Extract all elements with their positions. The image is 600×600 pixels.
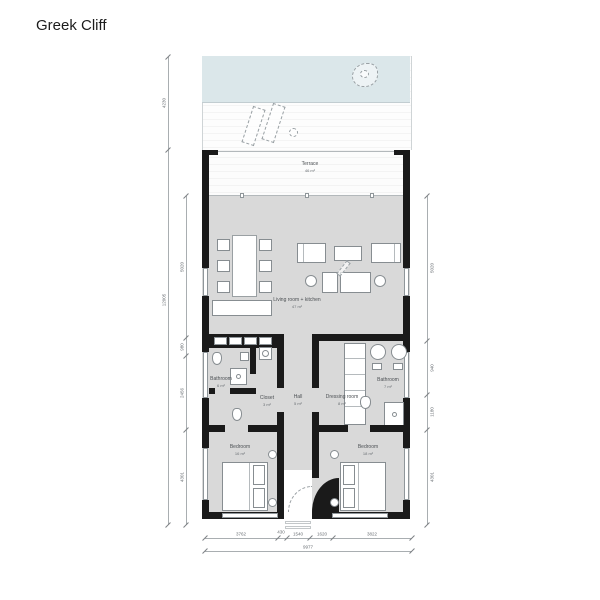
pool <box>202 56 410 103</box>
wall <box>248 425 284 432</box>
toilet <box>232 408 242 421</box>
closet-niche <box>214 337 227 345</box>
shower-drain <box>236 374 241 379</box>
dimension-tick <box>183 522 189 528</box>
bed-line <box>358 463 359 510</box>
wall <box>230 388 256 394</box>
glass-wall-tick <box>240 193 244 198</box>
window <box>404 268 409 296</box>
dimension-line <box>168 57 169 525</box>
wall <box>202 425 225 432</box>
toilet <box>212 352 222 365</box>
room-label-bedroom-left: Bedroom 16 m² <box>230 444 250 456</box>
dimension-label: 12005 <box>162 294 167 307</box>
dimension-line <box>186 196 187 525</box>
dimension-label: 940 <box>430 364 435 372</box>
room-label-hall: Hall 5 m² <box>294 394 303 406</box>
vanity <box>372 363 382 370</box>
entrance-steps <box>285 521 311 524</box>
dimension-label: 430 <box>277 530 285 535</box>
side-table <box>289 128 298 137</box>
door-opening <box>277 388 284 412</box>
nightstand <box>268 498 277 507</box>
room-label-bathroom-left: Bathroom 6 m² <box>210 376 232 388</box>
window <box>332 513 388 518</box>
wall <box>202 398 209 448</box>
closet-niche <box>259 337 272 345</box>
wall <box>209 388 215 394</box>
sink <box>240 352 249 361</box>
pouf <box>305 275 317 287</box>
nightstand <box>268 450 277 459</box>
room-label-dressing: Dressing room 8 m² <box>326 394 359 406</box>
nightstand <box>330 498 339 507</box>
washer-drum <box>262 350 269 357</box>
entrance-steps <box>285 526 311 529</box>
wall <box>403 398 410 448</box>
dimension-label: 4301 <box>180 472 185 482</box>
sofa-line <box>303 244 304 262</box>
door-opening <box>312 388 319 412</box>
terrace <box>202 150 410 196</box>
vanity <box>393 363 403 370</box>
room-label-bedroom-right: Bedroom 18 m² <box>358 444 378 456</box>
pillow <box>343 488 355 508</box>
sink <box>370 344 386 360</box>
desk <box>322 272 338 293</box>
window <box>203 448 208 500</box>
room-label-closet: Closet 3 m² <box>260 395 274 407</box>
dimension-label: 3822 <box>367 532 377 537</box>
entrance-opening <box>284 512 312 519</box>
coffee-table <box>334 246 362 261</box>
floorplan-page: Greek Cliff Terrace 46 m² <box>0 0 600 600</box>
toilet <box>360 396 371 409</box>
dining-chair <box>217 239 230 251</box>
window <box>203 352 208 398</box>
dining-table <box>232 235 257 297</box>
wall <box>277 334 284 512</box>
room-label-living: Living room + kitchen 47 m² <box>273 297 320 309</box>
dimension-label: 4230 <box>162 98 167 108</box>
dimension-label: 2456 <box>180 388 185 398</box>
closet-niche <box>244 337 257 345</box>
window <box>404 352 409 398</box>
wall <box>202 150 209 268</box>
sofa-line <box>394 244 395 262</box>
dimension-label: 1620 <box>317 532 327 537</box>
sink <box>391 344 407 360</box>
sofa <box>297 243 326 263</box>
wall <box>250 348 256 374</box>
glass-wall-tick <box>305 193 309 198</box>
dimension-label: 5020 <box>180 262 185 272</box>
wall <box>312 425 348 432</box>
dimension-label: 5020 <box>430 263 435 273</box>
dimension-line <box>427 196 428 525</box>
wall <box>403 296 410 352</box>
plant-icon <box>360 70 369 78</box>
dimension-tick <box>409 535 415 541</box>
shower-drain <box>392 412 397 417</box>
dimension-tick <box>424 522 430 528</box>
dimension-label: 1540 <box>293 532 303 537</box>
wardrobe-shelf <box>345 358 365 359</box>
bed-line <box>249 463 250 510</box>
nightstand <box>330 450 339 459</box>
dining-chair <box>217 260 230 272</box>
dimension-tick <box>165 522 171 528</box>
pillow <box>253 488 265 508</box>
dimension-line <box>205 551 412 552</box>
terrace-edge <box>218 151 394 152</box>
pillow <box>253 465 265 485</box>
dining-chair <box>259 260 272 272</box>
page-title: Greek Cliff <box>36 17 107 34</box>
room-label-bathroom-right: Bathroom 7 m² <box>377 377 399 389</box>
window <box>222 513 278 518</box>
dimension-label: 3762 <box>236 532 246 537</box>
dining-chair <box>259 281 272 293</box>
window <box>404 448 409 500</box>
room-label-terrace: Terrace 46 m² <box>302 161 319 173</box>
wardrobe-shelf <box>345 390 365 391</box>
dimension-label: 4301 <box>430 472 435 482</box>
wardrobe-shelf <box>345 374 365 375</box>
dimension-tick <box>409 548 415 554</box>
wardrobe <box>344 343 366 425</box>
dimension-label: 9977 <box>303 545 313 550</box>
dining-chair <box>259 239 272 251</box>
kitchen-island <box>212 300 272 316</box>
desk <box>340 272 371 293</box>
wall <box>370 425 410 432</box>
pillow <box>343 465 355 485</box>
window <box>203 268 208 296</box>
sofa <box>371 243 401 263</box>
glass-wall-tick <box>370 193 374 198</box>
closet-niche <box>229 337 242 345</box>
dimension-label: 1180 <box>430 407 435 417</box>
pouf <box>374 275 386 287</box>
dining-chair <box>217 281 230 293</box>
wall <box>312 334 410 341</box>
wall <box>403 150 410 268</box>
dimension-label: 980 <box>180 343 185 351</box>
